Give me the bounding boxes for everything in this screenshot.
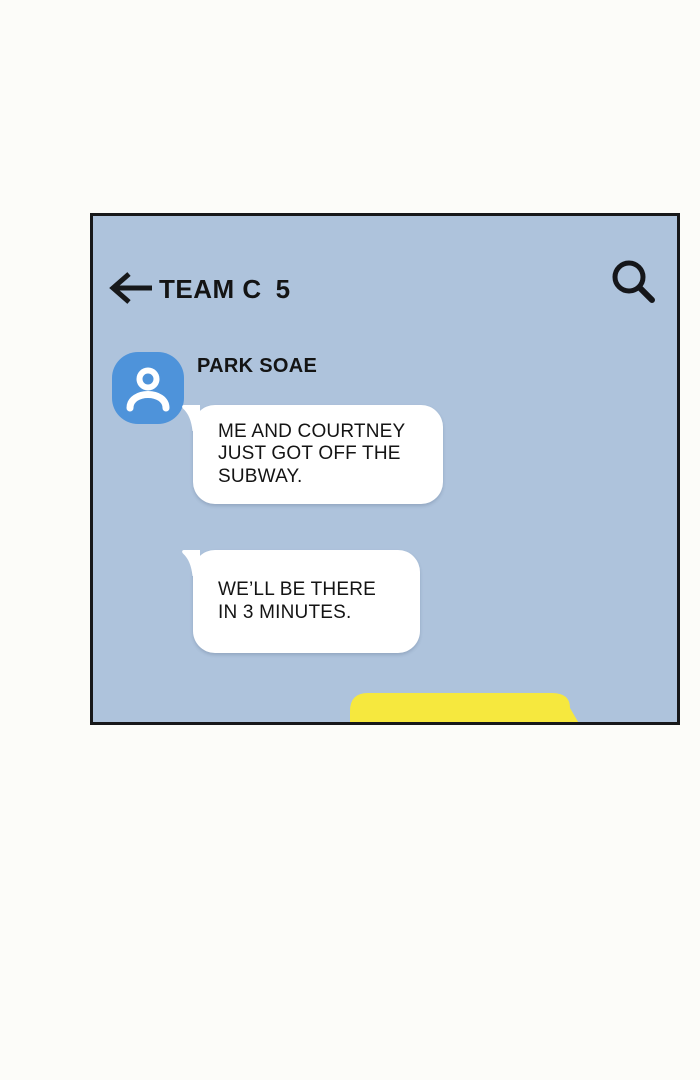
sender-name: PARK SOAE (197, 355, 317, 378)
member-count: 5 (276, 274, 291, 305)
message-text: ME AND COURTNEY JUST GOT OFF THE SUBWAY. (193, 421, 417, 489)
search-button[interactable] (609, 256, 661, 308)
chat-header: TEAM C 5 (159, 274, 291, 305)
bubble-tail (182, 550, 200, 576)
bubble-tail (182, 405, 200, 431)
person-icon (112, 352, 184, 424)
message-bubble: ME AND COURTNEY JUST GOT OFF THE SUBWAY. (193, 405, 443, 504)
arrow-left-icon (107, 271, 155, 305)
outgoing-bubble-shape (350, 693, 590, 725)
message-text: WE’LL BE THERE IN 3 MINUTES. (193, 579, 388, 624)
back-button[interactable] (107, 271, 155, 305)
message-bubble: WE’LL BE THERE IN 3 MINUTES. (193, 550, 420, 653)
page-background: TEAM C 5 PARK SOAE ME AND COURTNEY JUST … (0, 0, 700, 1080)
chat-panel: TEAM C 5 PARK SOAE ME AND COURTNEY JUST … (90, 213, 680, 725)
chat-title: TEAM C (159, 274, 262, 305)
avatar[interactable] (112, 352, 184, 424)
outgoing-message-bubble (350, 693, 590, 725)
search-icon (609, 256, 661, 308)
